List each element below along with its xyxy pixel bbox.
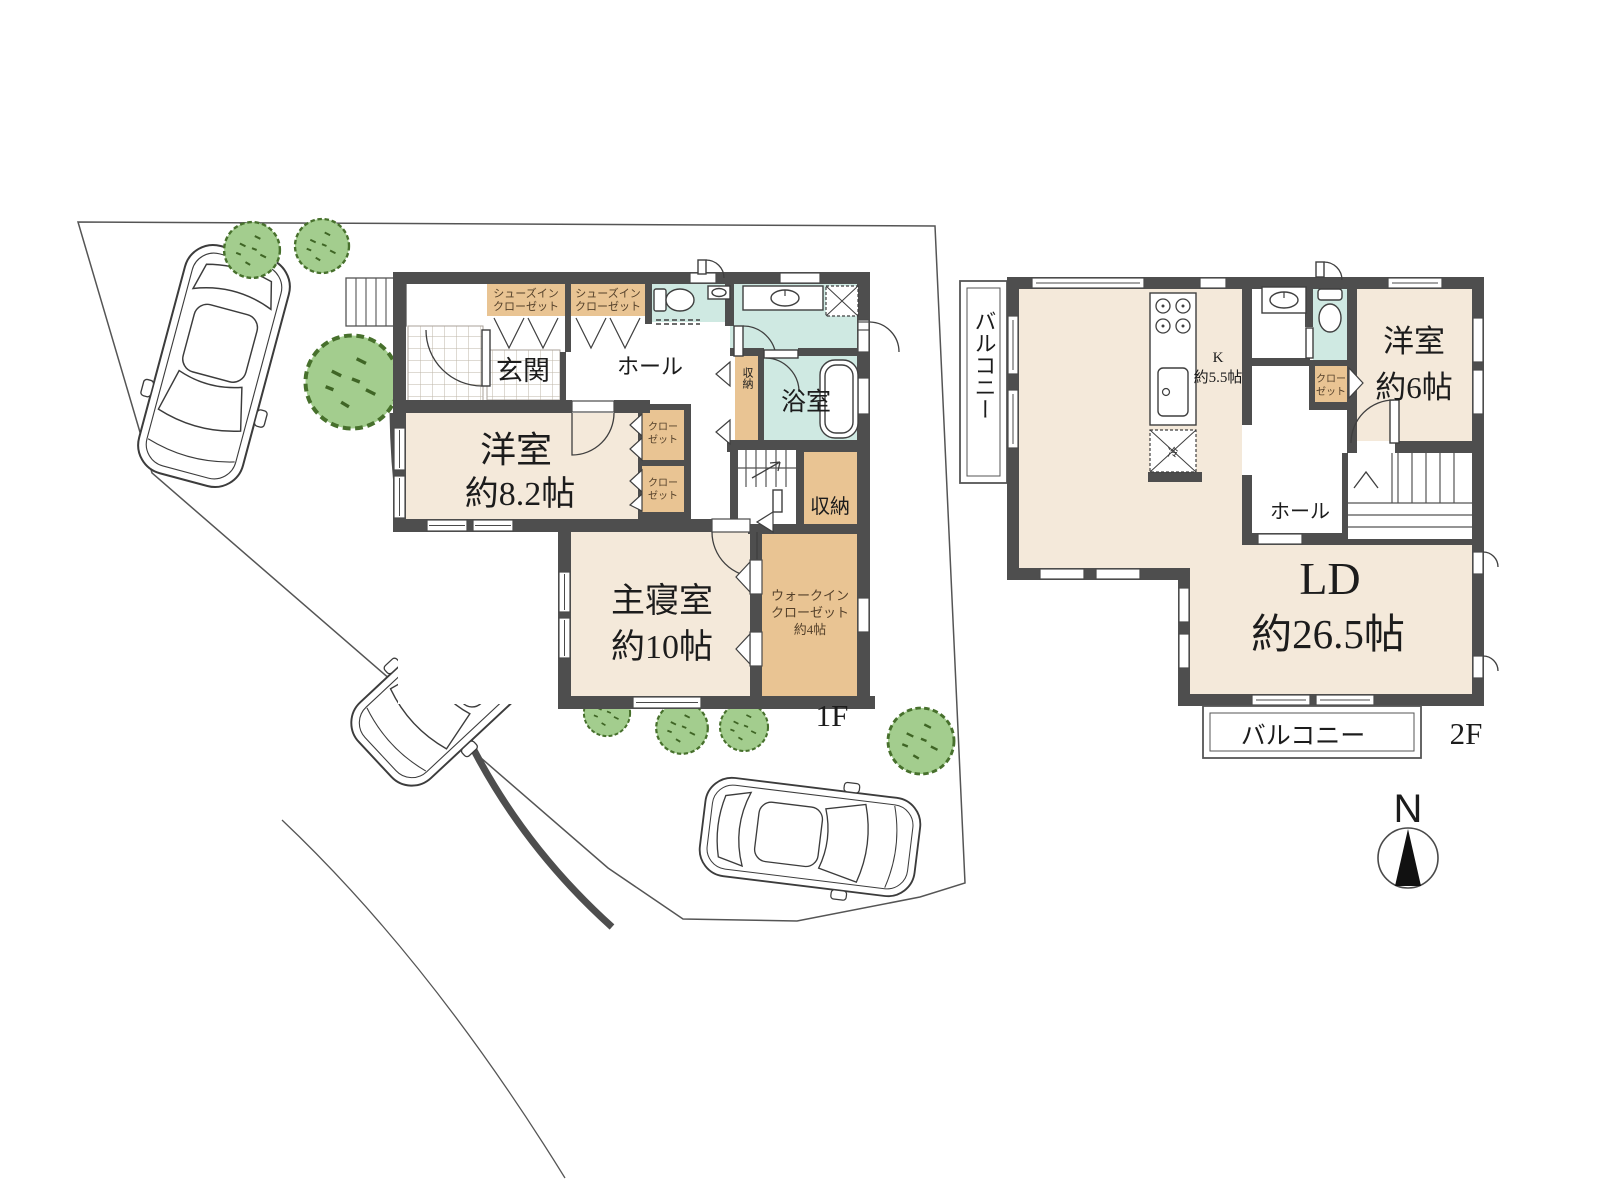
road-edge-line <box>282 820 565 1178</box>
toilet-icon-2f <box>1318 289 1342 332</box>
master-bedroom-size: 約10帖 <box>611 628 713 666</box>
washer-pan-icon <box>826 286 858 316</box>
wic-line1: ウォークイン <box>771 588 849 603</box>
car-icon <box>696 766 925 909</box>
shoes-closet-1-line2: クローゼット <box>493 300 559 313</box>
floor1-plan: 玄関 ホール 洋室 約8.2帖 主寝室 約10帖 浴室 収納 収納 シューズイン… <box>346 260 899 733</box>
north-arrow-icon: N <box>1378 787 1438 888</box>
tree-icon <box>888 708 954 774</box>
stairs-2f <box>1348 453 1472 539</box>
kitchen-name: K <box>1213 350 1224 366</box>
western-room-size-1f: 約8.2帖 <box>465 475 576 513</box>
floorplan-drawing: 玄関 ホール 洋室 約8.2帖 主寝室 約10帖 浴室 収納 収納 シューズイン… <box>0 0 1600 1200</box>
closet-a-line2: ゼット <box>648 434 678 446</box>
entrance-door <box>482 330 490 386</box>
fridge-label: 冷 <box>1168 446 1179 459</box>
stairs-1f <box>738 450 796 487</box>
shoes-closet-1-line1: シューズイン <box>493 286 558 300</box>
shoes-closet-2-line2: クローゼット <box>575 300 641 313</box>
hall-label-2f: ホール <box>1270 501 1330 523</box>
closet-a-line1: クロー <box>648 421 678 433</box>
kitchen-size: 約5.5帖 <box>1194 369 1243 386</box>
living-dining-name: LD <box>1299 553 1360 604</box>
vanity-sink-icon <box>743 286 823 310</box>
ldk-upper-2f <box>1019 289 1242 574</box>
kitchen-counter <box>1150 293 1196 425</box>
floor2-plan: バルコニー K 約5.5帖 冷 洋室 約6帖 クロー ゼット ホール LD 約2… <box>960 262 1498 758</box>
master-bedroom-name: 主寝室 <box>611 582 713 620</box>
tree-icon <box>295 219 349 273</box>
floor1-tag: 1F <box>816 698 849 733</box>
closet-2f-line2: ゼット <box>1316 386 1346 398</box>
entrance-label: 玄関 <box>496 356 550 386</box>
tree-icon <box>224 222 280 278</box>
car-icon <box>122 236 306 496</box>
closet-2f-line1: クロー <box>1316 373 1346 385</box>
porch-tiles <box>408 326 483 404</box>
tree-icon <box>720 703 768 751</box>
balcony-left-label: バルコニー <box>972 310 997 420</box>
kitchen-sink-icon <box>1158 368 1188 416</box>
western-room-name-2f: 洋室 <box>1383 324 1445 359</box>
bathroom-label: 浴室 <box>781 388 831 416</box>
side-storage-label: 収納 <box>741 367 754 390</box>
north-label: N <box>1394 787 1423 831</box>
tree-icon <box>656 702 708 754</box>
wic-line2: クローゼット <box>771 605 849 620</box>
hall-label-1f: ホール <box>617 354 683 379</box>
western-room-name-1f: 洋室 <box>480 430 552 470</box>
balcony-bottom-label: バルコニー <box>1241 723 1366 750</box>
closet-b-line2: ゼット <box>648 490 678 502</box>
tree-icon <box>306 336 399 429</box>
western-room-2f <box>1357 289 1472 441</box>
shoes-closet-2-line1: シューズイン <box>575 286 640 300</box>
floor2-tag: 2F <box>1450 716 1483 751</box>
wic-size: 約4帖 <box>794 622 827 637</box>
closet-b-line1: クロー <box>648 477 678 489</box>
washbasin-icon-2f <box>1262 287 1306 313</box>
closet-b-1f <box>642 466 684 514</box>
floorplan-page: 玄関 ホール 洋室 約8.2帖 主寝室 約10帖 浴室 収納 収納 シューズイン… <box>0 0 1600 1200</box>
storage-label-1f: 収納 <box>810 495 850 518</box>
western-room-size-2f: 約6帖 <box>1375 370 1453 405</box>
living-dining-size: 約26.5帖 <box>1251 611 1405 657</box>
